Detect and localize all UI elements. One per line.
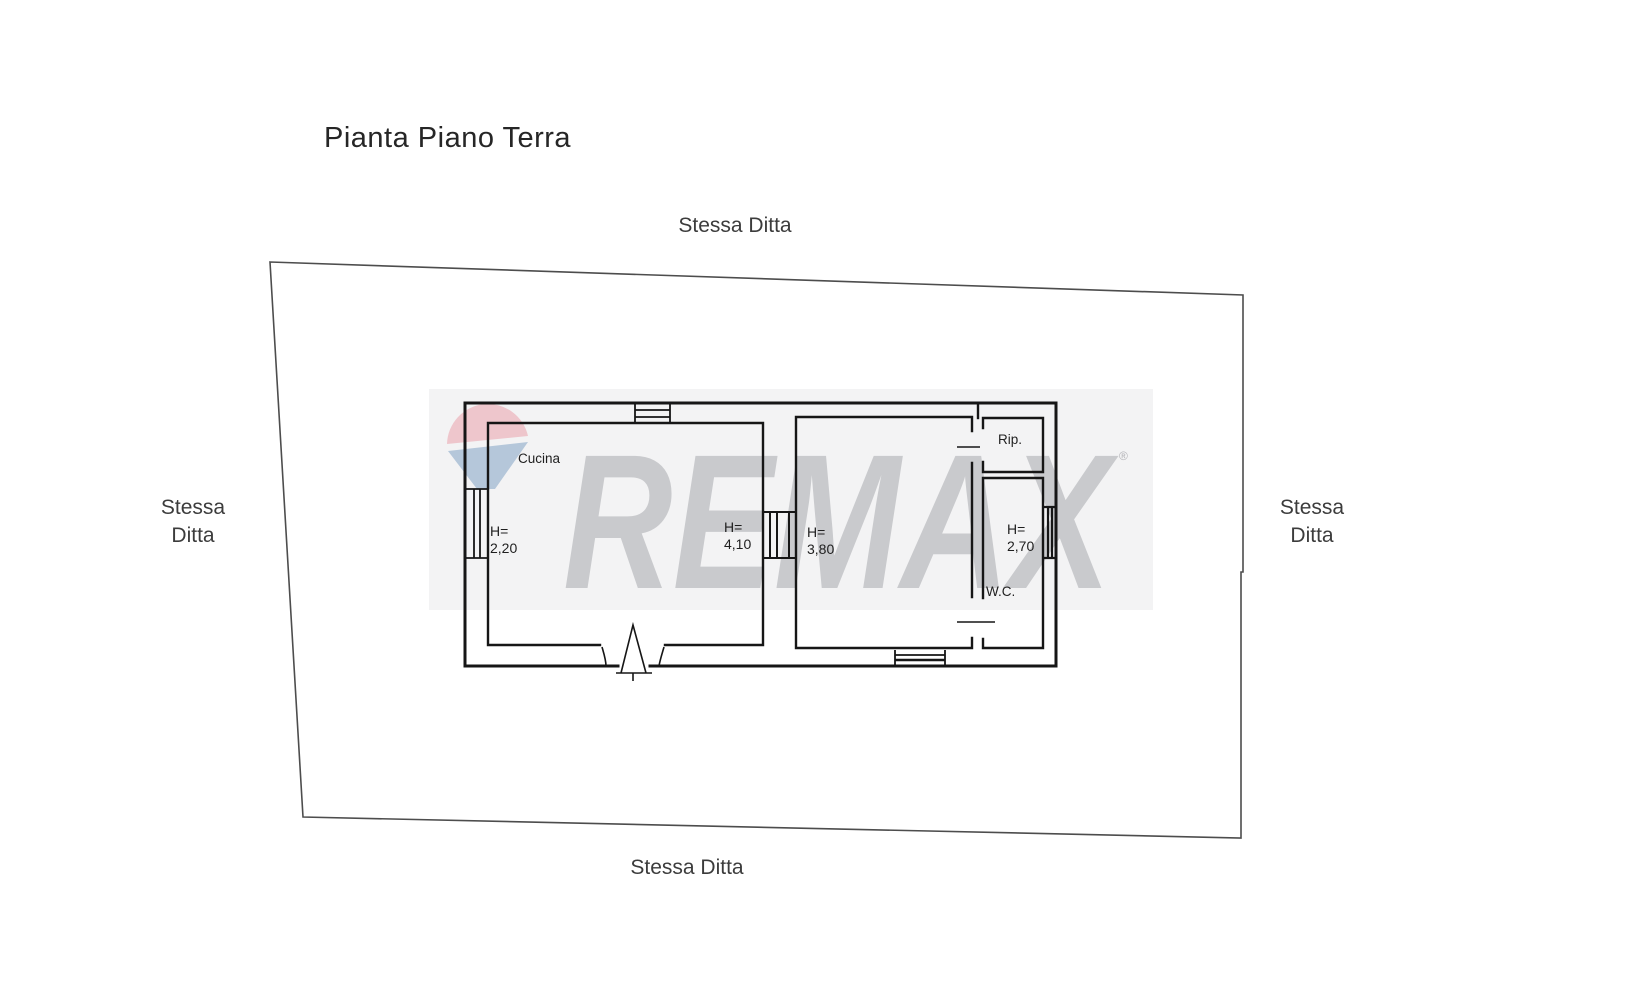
bottom-window-icon (895, 650, 945, 666)
watermark-brand-text: REMAX (563, 414, 1119, 629)
remax-watermark: REMAX (429, 389, 1153, 629)
site-label-right-line2: Ditta (1247, 522, 1377, 550)
entry-door-leaf-icon (616, 625, 652, 681)
site-label-bottom: Stessa Ditta (607, 854, 767, 882)
floor-plan-page: { "title": "Pianta Piano Terra", "site_l… (0, 0, 1632, 1008)
site-label-left: Stessa Ditta (128, 494, 258, 550)
height-annotation-3-prefix: H= (807, 524, 834, 541)
entry-door-jambs-icon (602, 647, 664, 666)
height-annotation-2: H= 4,10 (724, 519, 751, 553)
site-label-right: Stessa Ditta (1247, 494, 1377, 550)
room-label-wc: W.C. (986, 584, 1015, 599)
registered-trademark-icon: ® (1119, 449, 1128, 463)
height-annotation-2-value: 4,10 (724, 536, 751, 553)
height-annotation-1-value: 2,20 (490, 540, 517, 557)
room-label-storage: Rip. (998, 432, 1022, 447)
site-label-left-line2: Ditta (128, 522, 258, 550)
height-annotation-4: H= 2,70 (1007, 521, 1034, 555)
height-annotation-1: H= 2,20 (490, 523, 517, 557)
site-label-top: Stessa Ditta (655, 212, 815, 240)
room-label-kitchen: Cucina (518, 451, 560, 466)
height-annotation-4-prefix: H= (1007, 521, 1034, 538)
height-annotation-2-prefix: H= (724, 519, 751, 536)
page-title: Pianta Piano Terra (324, 122, 571, 155)
height-annotation-1-prefix: H= (490, 523, 517, 540)
site-label-left-line1: Stessa (128, 494, 258, 522)
height-annotation-3-value: 3,80 (807, 541, 834, 558)
height-annotation-4-value: 2,70 (1007, 538, 1034, 555)
site-label-right-line1: Stessa (1247, 494, 1377, 522)
height-annotation-3: H= 3,80 (807, 524, 834, 558)
